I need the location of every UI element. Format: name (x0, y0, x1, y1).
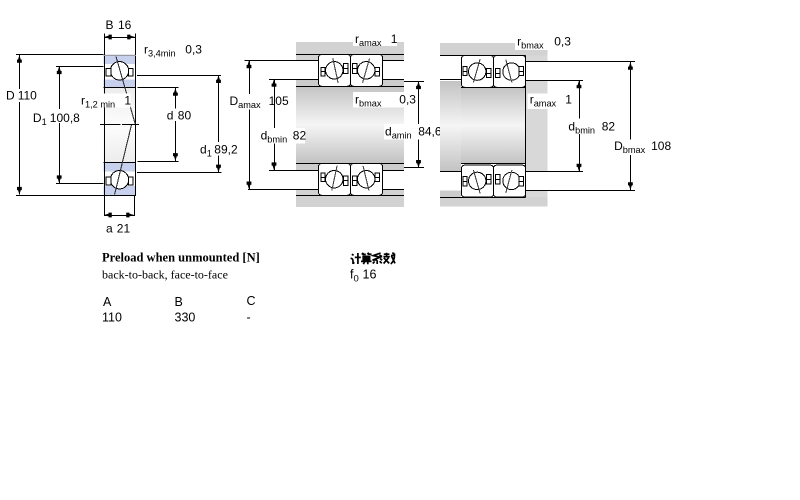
svg-text:D: D (6, 89, 15, 103)
svg-text:108: 108 (651, 139, 671, 153)
svg-text:0,3: 0,3 (554, 34, 571, 48)
svg-text:1: 1 (391, 32, 398, 46)
svg-text:82: 82 (602, 119, 616, 133)
svg-text:r3,4min: r3,4min (144, 43, 176, 59)
svg-text:105: 105 (269, 94, 289, 108)
svg-text:B: B (175, 295, 183, 309)
svg-text:Preload when unmounted [N]: Preload when unmounted [N] (102, 251, 260, 265)
svg-text:89,2: 89,2 (214, 143, 238, 157)
svg-text:0,3: 0,3 (185, 43, 202, 57)
svg-text:0,3: 0,3 (399, 92, 416, 106)
svg-text:16: 16 (363, 267, 377, 281)
svg-text:100,8: 100,8 (50, 111, 80, 125)
svg-text:84,6: 84,6 (418, 124, 442, 138)
svg-text:a: a (106, 221, 113, 235)
svg-text:A: A (103, 295, 112, 309)
svg-text:B: B (106, 18, 114, 32)
svg-text:-: - (247, 311, 251, 325)
svg-text:330: 330 (175, 311, 196, 325)
svg-text:16: 16 (118, 18, 132, 32)
svg-text:80: 80 (178, 109, 192, 123)
svg-text:back-to-back, face-to-face: back-to-back, face-to-face (102, 267, 228, 281)
svg-text:1: 1 (565, 92, 572, 106)
svg-text:21: 21 (117, 221, 131, 235)
svg-text:f0: f0 (350, 267, 359, 284)
svg-text:C: C (247, 294, 256, 308)
svg-text:d: d (167, 109, 174, 123)
svg-text:110: 110 (102, 311, 122, 325)
svg-text:82: 82 (293, 129, 307, 143)
svg-text:110: 110 (18, 89, 37, 103)
svg-text:1: 1 (124, 93, 131, 107)
